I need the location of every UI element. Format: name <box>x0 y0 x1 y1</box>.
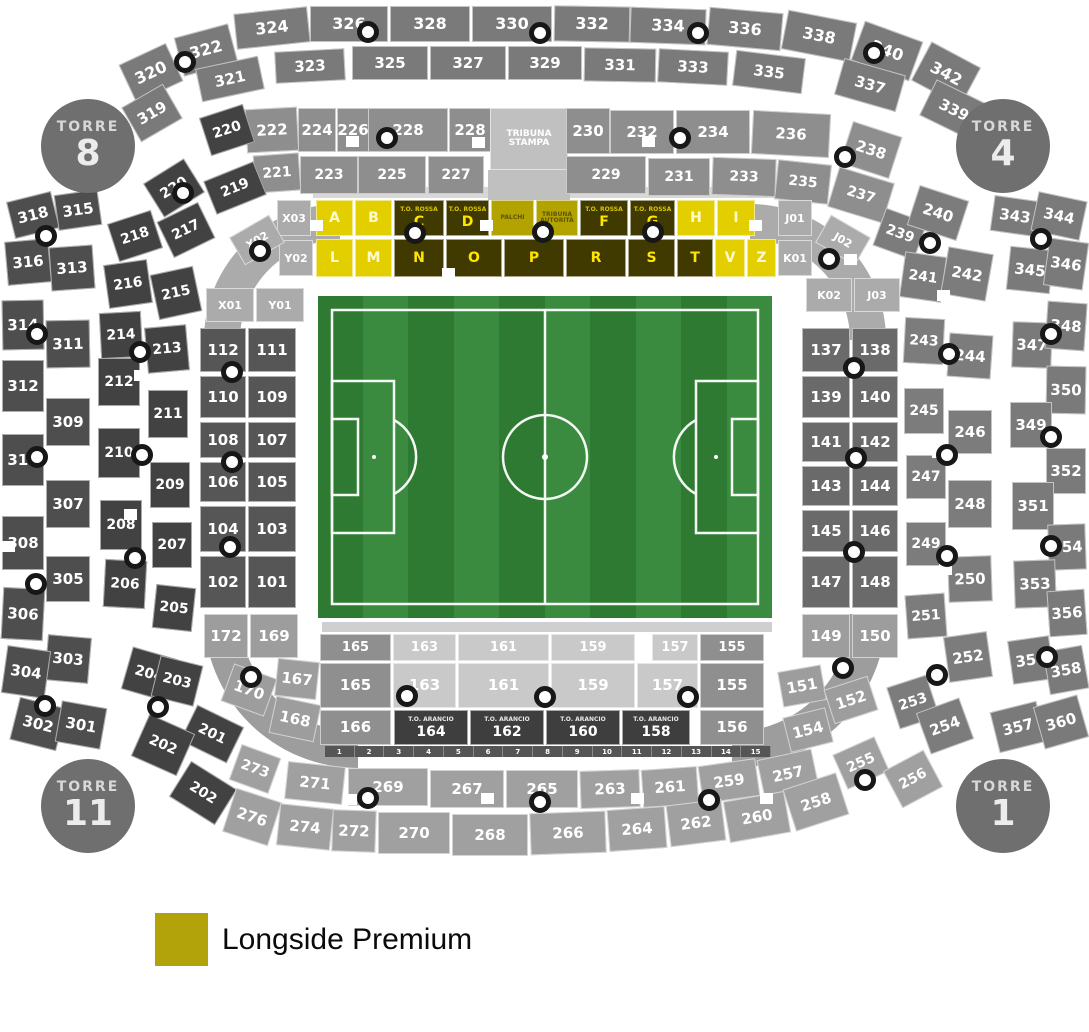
section-212[interactable]: 212 <box>98 358 140 406</box>
row-number-1: 1 <box>325 746 355 757</box>
section-325[interactable]: 325 <box>352 46 428 80</box>
entrance-marker <box>534 686 556 708</box>
section-T[interactable]: T <box>677 239 713 277</box>
entrance-marker <box>357 21 379 43</box>
section-156[interactable]: 156 <box>700 710 764 745</box>
section-S[interactable]: S <box>628 239 675 277</box>
section-110[interactable]: 110 <box>200 376 246 418</box>
section-102[interactable]: 102 <box>200 556 246 608</box>
section-248[interactable]: 248 <box>948 480 992 528</box>
gate-square <box>2 541 15 552</box>
section-155[interactable]: 155 <box>700 663 764 708</box>
row-number-3: 3 <box>384 746 414 757</box>
section-312[interactable]: 312 <box>2 360 44 412</box>
entrance-marker <box>834 146 856 168</box>
entrance-marker <box>221 361 243 383</box>
gate-square <box>346 136 359 147</box>
entrance-marker <box>240 666 262 688</box>
gate-square <box>442 268 455 279</box>
section-252[interactable]: 252 <box>943 631 993 683</box>
section-B[interactable]: B <box>355 200 392 236</box>
row-number-13: 13 <box>682 746 712 757</box>
entrance-marker <box>221 451 243 473</box>
section-311[interactable]: 311 <box>46 320 91 369</box>
section-Y02[interactable]: Y02 <box>279 240 313 276</box>
gate-square <box>472 137 485 148</box>
section-103[interactable]: 103 <box>248 506 296 552</box>
entrance-marker <box>687 22 709 44</box>
entrance-marker <box>677 686 699 708</box>
entrance-marker <box>669 127 691 149</box>
section-164[interactable]: T.O. ARANCIO164 <box>394 710 468 745</box>
section-211[interactable]: 211 <box>148 390 188 438</box>
section-303[interactable]: 303 <box>44 634 92 684</box>
section-J01[interactable]: J01 <box>778 200 812 236</box>
section-X03[interactable]: X03 <box>277 200 311 236</box>
section-163a[interactable]: 163 <box>393 634 456 661</box>
entrance-marker <box>854 769 876 791</box>
section-245[interactable]: 245 <box>904 388 944 434</box>
section-139[interactable]: 139 <box>802 376 850 418</box>
gate-square <box>749 220 762 231</box>
deco-band <box>488 170 570 200</box>
section-Z[interactable]: Z <box>747 239 776 277</box>
entrance-marker <box>863 42 885 64</box>
entrance-marker <box>404 222 426 244</box>
section-306[interactable]: 306 <box>1 587 46 641</box>
entrance-marker <box>843 541 865 563</box>
section-222[interactable]: 222 <box>245 107 299 154</box>
section-266[interactable]: 266 <box>529 811 606 856</box>
section-109[interactable]: 109 <box>248 376 296 418</box>
section-X01[interactable]: X01 <box>206 288 254 322</box>
section-336[interactable]: 336 <box>706 7 783 51</box>
tower-1: TORRE1 <box>956 759 1050 853</box>
entrance-marker <box>1040 323 1062 345</box>
section-309[interactable]: 309 <box>46 398 90 446</box>
entrance-marker <box>926 664 948 686</box>
entrance-marker <box>529 22 551 44</box>
section-143[interactable]: 143 <box>802 466 850 506</box>
entrance-marker <box>936 444 958 466</box>
row-number-9: 9 <box>563 746 593 757</box>
section-165a[interactable]: 165 <box>320 634 391 661</box>
section-P[interactable]: P <box>504 239 564 277</box>
entrance-marker <box>147 696 169 718</box>
section-159a[interactable]: 159 <box>551 634 635 661</box>
section-palchi[interactable]: PALCHI <box>491 200 534 236</box>
section-236[interactable]: 236 <box>751 110 831 158</box>
section-207[interactable]: 207 <box>152 522 192 568</box>
section-161a[interactable]: 161 <box>458 634 549 661</box>
entrance-marker <box>376 127 398 149</box>
entrance-marker <box>832 657 854 679</box>
section-160[interactable]: T.O. ARANCIO160 <box>546 710 620 745</box>
entrance-marker <box>1040 426 1062 448</box>
section-150[interactable]: 150 <box>852 614 898 658</box>
section-144[interactable]: 144 <box>852 466 898 506</box>
section-229[interactable]: 229 <box>566 156 646 194</box>
section-K01[interactable]: K01 <box>778 240 812 276</box>
section-223[interactable]: 223 <box>300 156 358 194</box>
row-number-12: 12 <box>652 746 682 757</box>
row-number-5: 5 <box>444 746 474 757</box>
section-327[interactable]: 327 <box>430 46 506 80</box>
entrance-marker <box>124 547 146 569</box>
entrance-marker <box>131 444 153 466</box>
section-140[interactable]: 140 <box>852 376 898 418</box>
gate-square <box>344 794 357 805</box>
entrance-marker <box>843 357 865 379</box>
section-167[interactable]: 167 <box>274 658 320 700</box>
section-L[interactable]: L <box>316 239 353 277</box>
section-107[interactable]: 107 <box>248 422 296 458</box>
section-159[interactable]: 159 <box>551 663 635 708</box>
section-172[interactable]: 172 <box>204 614 248 658</box>
section-157a[interactable]: 157 <box>652 634 698 661</box>
entrance-marker <box>34 695 56 717</box>
section-233[interactable]: 233 <box>711 157 776 197</box>
section-230[interactable]: 230 <box>566 108 610 154</box>
section-264[interactable]: 264 <box>607 806 668 852</box>
legend-swatch-longside-premium <box>155 913 208 966</box>
entrance-marker <box>26 446 48 468</box>
section-tribuna-stampa[interactable]: TRIBUNA STAMPA <box>490 108 568 170</box>
entrance-marker <box>35 225 57 247</box>
section-208[interactable]: 208 <box>100 500 142 550</box>
entrance-marker <box>396 685 418 707</box>
entrance-marker <box>698 789 720 811</box>
gate-square <box>642 136 655 147</box>
section-328[interactable]: 328 <box>390 6 470 42</box>
legend: Longside Premium <box>155 913 472 966</box>
section-235[interactable]: 235 <box>774 159 832 204</box>
row-number-6: 6 <box>474 746 504 757</box>
row-number-7: 7 <box>503 746 533 757</box>
section-268[interactable]: 268 <box>452 814 528 856</box>
gate-square <box>310 220 323 231</box>
section-301[interactable]: 301 <box>55 700 108 749</box>
entrance-marker <box>532 221 554 243</box>
section-Y01[interactable]: Y01 <box>256 288 304 322</box>
row-number-strip: 123456789101112131415 <box>325 746 771 757</box>
section-J03[interactable]: J03 <box>854 278 900 312</box>
section-213[interactable]: 213 <box>144 324 190 373</box>
section-111[interactable]: 111 <box>248 328 296 372</box>
section-147[interactable]: 147 <box>802 556 850 608</box>
gate-square <box>760 793 773 804</box>
section-M[interactable]: M <box>355 239 392 277</box>
section-271[interactable]: 271 <box>284 761 346 805</box>
section-225[interactable]: 225 <box>358 156 426 194</box>
deco-band <box>322 622 772 632</box>
football-pitch <box>318 296 772 618</box>
section-351[interactable]: 351 <box>1012 482 1054 530</box>
section-149[interactable]: 149 <box>802 614 850 658</box>
section-166[interactable]: 166 <box>320 710 391 745</box>
section-251[interactable]: 251 <box>905 593 948 640</box>
section-105[interactable]: 105 <box>248 462 296 502</box>
section-N[interactable]: N <box>394 239 444 277</box>
tower-4: TORRE4 <box>956 99 1050 193</box>
stadium-seat-map: 123456789101112131415 Longside Premium 3… <box>0 0 1089 1032</box>
row-number-2: 2 <box>355 746 385 757</box>
entrance-marker <box>1030 228 1052 250</box>
entrance-marker <box>936 545 958 567</box>
entrance-marker <box>1040 535 1062 557</box>
section-227[interactable]: 227 <box>428 156 484 194</box>
row-number-11: 11 <box>622 746 652 757</box>
section-270[interactable]: 270 <box>378 812 450 854</box>
entrance-marker <box>219 536 241 558</box>
tower-11: TORRE11 <box>41 759 135 853</box>
section-232[interactable]: 232 <box>610 110 674 154</box>
section-155a[interactable]: 155 <box>700 634 764 661</box>
entrance-marker <box>174 51 196 73</box>
entrance-marker <box>845 447 867 469</box>
entrance-marker <box>818 248 840 270</box>
section-F[interactable]: T.O. ROSSAF <box>580 200 628 236</box>
section-H[interactable]: H <box>677 200 715 236</box>
row-number-15: 15 <box>741 746 771 757</box>
section-162[interactable]: T.O. ARANCIO162 <box>470 710 544 745</box>
section-332[interactable]: 332 <box>554 5 631 42</box>
entrance-marker <box>529 791 551 813</box>
section-V[interactable]: V <box>715 239 745 277</box>
entrance-marker <box>129 341 151 363</box>
section-331[interactable]: 331 <box>584 47 657 82</box>
section-215[interactable]: 215 <box>150 266 203 320</box>
gate-square <box>480 220 493 231</box>
section-307[interactable]: 307 <box>46 480 90 528</box>
section-333[interactable]: 333 <box>657 48 729 86</box>
row-number-10: 10 <box>593 746 623 757</box>
gate-square <box>844 254 857 265</box>
gate-square <box>481 793 494 804</box>
entrance-marker <box>919 232 941 254</box>
section-K02[interactable]: K02 <box>806 278 852 312</box>
entrance-marker <box>1036 646 1058 668</box>
section-R[interactable]: R <box>566 239 626 277</box>
row-number-4: 4 <box>414 746 444 757</box>
section-169[interactable]: 169 <box>250 614 298 658</box>
section-148[interactable]: 148 <box>852 556 898 608</box>
section-165[interactable]: 165 <box>320 663 391 708</box>
section-315[interactable]: 315 <box>54 189 103 231</box>
gate-square <box>631 793 644 804</box>
section-324[interactable]: 324 <box>233 6 310 50</box>
section-356[interactable]: 356 <box>1046 589 1087 638</box>
gate-square <box>134 370 147 381</box>
section-145[interactable]: 145 <box>802 510 850 552</box>
row-number-8: 8 <box>533 746 563 757</box>
entrance-marker <box>172 182 194 204</box>
section-323[interactable]: 323 <box>274 48 346 84</box>
section-205[interactable]: 205 <box>152 584 196 632</box>
section-305[interactable]: 305 <box>46 556 90 602</box>
section-141[interactable]: 141 <box>802 422 850 462</box>
section-151[interactable]: 151 <box>777 664 827 707</box>
section-274[interactable]: 274 <box>276 803 334 850</box>
section-272[interactable]: 272 <box>331 809 376 853</box>
row-number-14: 14 <box>712 746 742 757</box>
entrance-marker <box>357 787 379 809</box>
entrance-marker <box>642 221 664 243</box>
section-231[interactable]: 231 <box>648 158 710 196</box>
entrance-marker <box>249 240 271 262</box>
section-158[interactable]: T.O. ARANCIO158 <box>622 710 690 745</box>
section-101[interactable]: 101 <box>248 556 296 608</box>
entrance-marker <box>938 343 960 365</box>
legend-label: Longside Premium <box>222 923 472 957</box>
gate-square <box>124 509 137 520</box>
section-313[interactable]: 313 <box>49 245 96 292</box>
entrance-marker <box>25 573 47 595</box>
section-209[interactable]: 209 <box>150 462 190 508</box>
gate-square <box>56 231 69 242</box>
entrance-marker <box>26 323 48 345</box>
section-224[interactable]: 224 <box>298 108 336 152</box>
section-216[interactable]: 216 <box>103 259 153 309</box>
gate-square <box>937 290 950 301</box>
section-304[interactable]: 304 <box>1 645 51 699</box>
section-329[interactable]: 329 <box>508 46 582 80</box>
tower-8: TORRE8 <box>41 99 135 193</box>
